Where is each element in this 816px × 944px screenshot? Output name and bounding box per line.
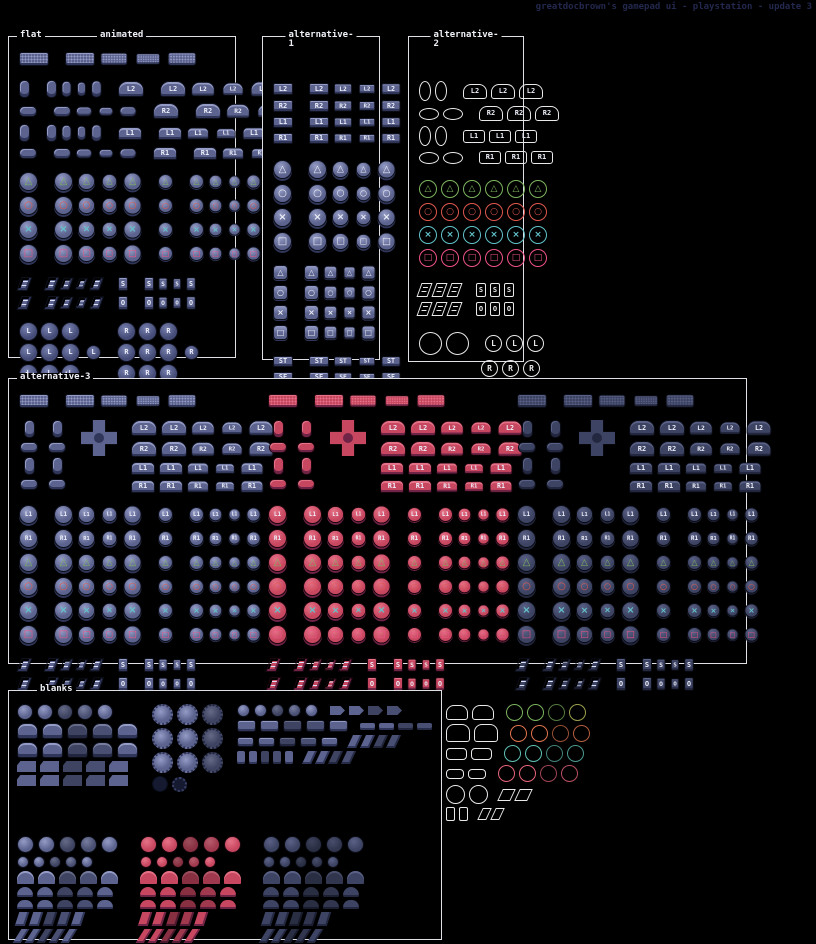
- sprite-group: [419, 126, 447, 146]
- sprite-label: L1: [720, 466, 727, 472]
- face-button-circle-sprite: ○: [78, 578, 95, 595]
- face-button-square-triangle-sprite: △: [304, 265, 319, 280]
- trigger-button-l1-sprite: L1: [380, 462, 404, 475]
- sprite-label: L2: [471, 88, 479, 95]
- outline-ring-teal-sprite: [525, 745, 542, 762]
- trigger-chip-r2-sprite: R2: [382, 100, 401, 111]
- face-button-circle-sprite: ○: [327, 578, 344, 595]
- sprite-group: ×: [656, 603, 671, 618]
- sprite-label: L1: [223, 130, 230, 136]
- sprite-group: [19, 106, 37, 117]
- trigger-chip-st-sprite: ST: [334, 357, 352, 367]
- sprite-group: ××××: [303, 601, 391, 620]
- face-button-l1-sprite: L1: [327, 506, 344, 523]
- sprite-label: O: [507, 306, 511, 313]
- sprite-label: R1: [279, 135, 287, 142]
- sprite-group: [140, 887, 236, 897]
- face-button-cross-sprite: ×: [552, 601, 571, 620]
- blanks-top-panel-1: [17, 701, 138, 786]
- sprite-group: R1: [407, 531, 422, 546]
- sprite-label: R2: [487, 110, 495, 117]
- sprite-label: O: [687, 681, 691, 688]
- sprite-row: ○○○○○○: [419, 203, 513, 221]
- sprite-row: OOO: [419, 302, 513, 316]
- sprite-label: L1: [279, 119, 287, 126]
- sprite-group: [517, 677, 528, 691]
- dpad-pill-horizontal-sprite: [53, 148, 71, 159]
- face-button-circle-sprite: ○: [123, 196, 141, 214]
- face-button-l1-sprite: L1: [656, 507, 671, 522]
- face-button-cross-sprite: ×: [707, 604, 721, 618]
- outline-circle-large-sprite: [419, 332, 442, 355]
- cross-glyph: ×: [365, 309, 371, 317]
- face-button-r1-sprite: R1: [189, 531, 204, 546]
- sprite-label: L2: [527, 88, 535, 95]
- trigger-button-l1-sprite: L1: [739, 462, 762, 474]
- sprite-label: L1: [222, 466, 229, 472]
- circle-glyph: ○: [360, 190, 367, 198]
- dpad-pill-horizontal-sprite: [19, 106, 37, 117]
- sprite-group: [517, 394, 547, 408]
- triangle-glyph: △: [314, 165, 322, 175]
- square-glyph: □: [557, 630, 566, 640]
- section-alternative-1: alternative-1 L2L2L2L2L2R2R2R2R2R2L1L1L1…: [262, 36, 380, 360]
- face-button-square-sprite: □: [158, 627, 173, 642]
- touchpad-sprite: [168, 394, 197, 407]
- sprite-label: L2: [506, 425, 514, 432]
- triangle-glyph: △: [447, 185, 454, 194]
- trigger-button-l1-sprite: L1: [436, 463, 458, 475]
- blank-half-dome-sprite: [160, 900, 176, 909]
- variant-rows: L2L2L2L2L2R2R2R2R2R2L1L1L1L1L1R1R1R1R1R1…: [511, 387, 754, 693]
- sprite-label: R: [124, 328, 128, 335]
- trigger-chip-st-sprite: ST: [309, 356, 329, 367]
- sprite-group: [268, 677, 279, 691]
- sprite-label: R2: [419, 446, 427, 453]
- blank-circle-sprite: [77, 704, 93, 720]
- blank-slant-right-sprite: [138, 912, 153, 926]
- outline-ring-teal-sprite: [567, 745, 584, 762]
- sprite-label: S: [370, 662, 374, 669]
- trigger-button-r1-sprite: R1: [222, 148, 244, 160]
- blank-arch-sprite: [326, 871, 343, 884]
- sprite-label: S: [507, 287, 511, 294]
- trigger-button-r2-sprite: R2: [747, 441, 772, 456]
- sprite-label: L1: [470, 133, 478, 140]
- sprite-group: L1: [517, 505, 536, 524]
- sprite-label: R1: [605, 536, 611, 541]
- sprite-row: [446, 724, 590, 742]
- face-button-square-sprite: □: [246, 246, 260, 260]
- face-button-cross-sprite: ×: [189, 603, 204, 618]
- sprite-label: R2: [478, 446, 485, 452]
- face-button-square-square-sprite: □: [324, 326, 338, 340]
- sprite-group: [237, 737, 338, 747]
- circle-glyph: ○: [106, 202, 113, 210]
- sprite-group: [419, 283, 460, 297]
- cross-glyph: ×: [250, 226, 256, 234]
- blank-half-dome-sprite: [323, 887, 339, 897]
- face-button-triangle-sprite: △: [438, 555, 453, 570]
- share-options-slanted-sprite: [75, 678, 88, 689]
- sprite-label: L2: [230, 86, 237, 92]
- face-button-r1-sprite: R1: [54, 529, 73, 548]
- face-button-square-sprite: □: [158, 246, 173, 261]
- trigger-button-r1-sprite: R1: [159, 480, 183, 493]
- sprite-group: ○○○○: [552, 577, 640, 596]
- face-button-triangle-sprite: △: [495, 555, 509, 569]
- blank-slant-sprite: [341, 751, 356, 764]
- sprite-label: S: [189, 281, 193, 288]
- sprite-group: [500, 789, 530, 801]
- cross-glyph: ×: [277, 309, 284, 317]
- share-options-slanted-sprite: [59, 659, 73, 672]
- sprite-label: R1: [194, 483, 202, 489]
- sprite-group: △: [19, 553, 38, 572]
- blank-circle-large-sprite: [161, 836, 178, 853]
- face-button-circle-sprite: ○: [268, 577, 287, 596]
- sprite-row: [263, 856, 364, 868]
- sprite-label: R2: [199, 446, 207, 452]
- share-options-slanted-sprite: [59, 297, 73, 310]
- triangle-glyph: △: [604, 559, 610, 567]
- trigger-frames-row: R2R2R2R2R2: [629, 441, 772, 457]
- face-button-triangle-sprite: △: [209, 556, 223, 570]
- sprite-group: OOO: [476, 302, 514, 316]
- dpad-pill-horizontal-sprite: [119, 148, 136, 158]
- circle-glyph: ○: [59, 582, 68, 592]
- sprite-group: [46, 277, 102, 291]
- trigger-frames-row: L1L1L1L1L1: [131, 462, 274, 475]
- face-button-triangle-sprite: △: [123, 553, 141, 571]
- face-button-l1-sprite: L1: [621, 505, 639, 523]
- circle-glyph: ○: [604, 583, 611, 591]
- face-button-square-circle-sprite: ○: [344, 287, 356, 299]
- sprite-group: △△△△: [303, 553, 391, 572]
- panel-rows: [17, 833, 118, 944]
- sprite-row: [263, 912, 364, 926]
- sprite-label: R1: [665, 483, 673, 490]
- sprite-row: [17, 900, 118, 909]
- blank-arch-sprite: [101, 871, 118, 884]
- sprite-label: R2: [234, 108, 242, 114]
- sprite-group: L1: [273, 117, 293, 128]
- sprite-group: R2: [131, 441, 157, 457]
- face-button-l1-sprite: L1: [517, 505, 536, 524]
- outline-circle-blank-sprite: [446, 785, 465, 804]
- trigger-button-l2-sprite: L2: [118, 81, 144, 97]
- blank-arch-sprite: [263, 871, 280, 884]
- face-button-square-sprite: □: [327, 626, 344, 643]
- outline-face-button-circle-sprite: ○: [419, 203, 437, 221]
- stick-r-small-sprite: R: [184, 345, 199, 360]
- sprite-label: R: [166, 370, 170, 377]
- sprite-label: R1: [60, 536, 67, 542]
- dpad-pill-vertical-sprite: [52, 457, 63, 475]
- sprite-group: S: [367, 658, 377, 672]
- sprite-label: L1: [692, 465, 700, 471]
- triangle-glyph: △: [730, 559, 735, 565]
- face-button-triangle-sprite: △: [102, 555, 117, 570]
- triangle-glyph: △: [481, 559, 486, 565]
- share-options-slanted-sprite: [308, 678, 322, 691]
- sprite-group: △△△△: [54, 553, 142, 572]
- blank-circle-sprite: [97, 704, 113, 720]
- stick-grid: RRRRRRRRR: [117, 322, 178, 383]
- cross-glyph: ×: [162, 607, 169, 615]
- face-button-cross-sprite: ×: [273, 208, 292, 227]
- blank-small-bar-sprite: [261, 751, 269, 764]
- share-options-slanted-sprite: [89, 296, 104, 309]
- dpad-pill-vertical-sprite: [91, 124, 101, 141]
- share-options-slanted-sprite: [265, 658, 281, 672]
- face-button-square-sprite: □: [438, 627, 453, 642]
- blank-notch-chip-sprite: [63, 775, 82, 786]
- sprite-group: [498, 765, 578, 782]
- blank-circle-small-sprite: [172, 856, 184, 868]
- blank-slant-right-sprite: [15, 912, 30, 926]
- triangle-glyph: △: [347, 269, 352, 275]
- sprite-group: R1R1R1R1: [552, 529, 640, 548]
- dpad-trigger-block: L2L2L2L2L2R2R2R2R2R2L1L1L1L1L1R1R1R1R1R1: [517, 420, 772, 493]
- sprite-group: ○: [407, 579, 422, 594]
- cross-glyph: ×: [212, 226, 218, 233]
- sprite-label: L1: [162, 512, 169, 518]
- sprite-row: [17, 723, 138, 739]
- square-glyph: □: [360, 238, 368, 246]
- blank-chip-sprite: [237, 720, 256, 732]
- share-options-chip-o-sprite: O: [684, 677, 694, 690]
- trigger-button-l2-sprite: L2: [440, 421, 463, 435]
- sprite-label: L1: [83, 512, 90, 517]
- square-glyph: □: [346, 329, 352, 335]
- share-options-chip-s-sprite: S: [657, 659, 666, 672]
- face-button-cross-sprite: ×: [687, 603, 702, 618]
- triangle-glyph: △: [308, 269, 314, 277]
- outline-chip-l1-sprite: L1: [515, 130, 537, 143]
- sprite-group: □: [19, 625, 38, 644]
- blank-circle-sprite: [17, 704, 33, 720]
- share-options-chip-s-sprite: S: [408, 659, 417, 672]
- sprite-label: R2: [162, 108, 170, 115]
- share-options-slanted-sprite: [541, 677, 557, 691]
- dpad-cross-sprite: [330, 420, 366, 456]
- sprite-row: SSSSS: [19, 658, 250, 672]
- face-button-circle-sprite: ○: [229, 581, 241, 593]
- sprite-label: R1: [161, 150, 169, 157]
- sprite-label: S: [438, 662, 442, 669]
- sprite-group: [19, 677, 30, 691]
- sprite-label: L1: [388, 465, 396, 472]
- face-button-triangle-sprite: △: [158, 174, 173, 189]
- square-glyph: □: [250, 250, 257, 258]
- sprite-row: SSSSS: [19, 277, 225, 291]
- sprite-row: △△△△△: [273, 265, 369, 280]
- face-button-circle-sprite: ○: [495, 579, 509, 593]
- cross-glyph: ×: [129, 606, 137, 616]
- face-button-l1-sprite: L1: [687, 507, 702, 522]
- blank-slant-right-sprite: [289, 912, 304, 926]
- sprite-label: L2: [339, 86, 347, 92]
- trigger-button-l2-sprite: L2: [720, 422, 741, 435]
- outline-ring-orange-sprite: [531, 725, 548, 742]
- dpad-pill-vertical-sprite: [273, 457, 284, 475]
- square-glyph: □: [106, 631, 114, 639]
- trigger-button-l2-sprite: L2: [410, 420, 436, 436]
- stick-l-sprite: L: [40, 343, 59, 362]
- outline-letter-chip-s-sprite: S: [490, 283, 500, 297]
- sprite-label: R1: [660, 536, 667, 542]
- outline-ring-pink-sprite: [561, 765, 578, 782]
- triangle-glyph: △: [274, 558, 282, 568]
- circle-glyph: ○: [660, 583, 667, 591]
- blank-circle-small-sprite: [327, 856, 339, 868]
- circle-glyph: ○: [468, 208, 476, 217]
- square-glyph: □: [308, 329, 316, 337]
- sprite-label: S: [121, 662, 125, 669]
- face-button-triangle-sprite: △: [303, 553, 322, 572]
- sprite-group: [419, 368, 465, 369]
- cross-glyph: ×: [232, 607, 237, 613]
- face-button-l1-sprite: L1: [78, 506, 95, 523]
- face-button-l1-sprite: L1: [229, 509, 241, 521]
- face-button-circle-sprite: ○: [158, 198, 173, 213]
- blank-arrow-sprite: [330, 706, 345, 715]
- sprite-group: △: [158, 555, 173, 570]
- square-glyph: □: [626, 630, 635, 640]
- blank-notch-chip-sprite: [109, 775, 128, 786]
- blank-slant-right-sprite: [180, 912, 195, 926]
- outline-face-button-triangle-sprite: △: [463, 180, 481, 198]
- sprite-label: R1: [387, 135, 395, 142]
- sprite-label: L1: [194, 130, 202, 136]
- panel-rows: [263, 833, 364, 944]
- sprite-group: ○○○○: [303, 577, 391, 596]
- sprite-row: ○○○○○○○○○○: [19, 196, 225, 215]
- sprite-group: [19, 277, 30, 291]
- outline-slanted-sprite: [431, 302, 447, 316]
- square-glyph: □: [24, 630, 33, 640]
- gamepad-sprite-sheet: greatdocbrown's gamepad ui - playstation…: [0, 0, 816, 944]
- outline-chip-l1-sprite: L1: [463, 130, 485, 143]
- sprite-row: [17, 775, 138, 786]
- share-options-chip-s-sprite: S: [186, 277, 196, 290]
- sprite-row: [17, 929, 118, 943]
- face-button-cross-sprite: ×: [576, 602, 593, 619]
- face-button-circle-sprite: ○: [209, 580, 223, 594]
- outline-slanted-sprite: [446, 302, 462, 316]
- outline-slanted-sprite: [446, 283, 462, 297]
- sprite-label: ST: [339, 358, 347, 364]
- sprite-group: [17, 836, 118, 853]
- blank-circle-small-sprite: [33, 856, 45, 868]
- share-options-chip-o-sprite: O: [616, 677, 626, 691]
- face-button-circle-sprite: ○: [273, 184, 292, 203]
- blank-small-bar-sprite: [285, 751, 293, 764]
- sprite-row: L1L1L1L1L1: [273, 117, 369, 128]
- sprite-group: L1L1L1L1: [657, 462, 762, 475]
- dpad-pill-horizontal-sprite: [518, 442, 536, 453]
- square-glyph: □: [424, 254, 433, 263]
- face-button-triangle-sprite: △: [209, 175, 223, 189]
- trigger-frames-row: L1L1L1L1L1: [629, 462, 772, 475]
- blank-arrow-sprite: [368, 706, 383, 715]
- face-button-square-sprite: □: [744, 627, 758, 641]
- outline-bar-blank-sprite: [459, 807, 468, 821]
- trigger-chip-r1-sprite: R1: [273, 133, 293, 144]
- trigger-chip-l2-sprite: L2: [309, 83, 329, 95]
- sprite-group: □□□□: [54, 244, 142, 263]
- sprite-label: R1: [83, 536, 90, 541]
- share-options-slanted-sprite: [557, 659, 571, 672]
- circle-glyph: ○: [499, 583, 506, 591]
- face-button-triangle-sprite: △: [356, 162, 371, 177]
- sprite-label: R2: [448, 446, 456, 452]
- outline-face-button-square-sprite: □: [441, 249, 459, 267]
- face-button-triangle-sprite: △: [327, 554, 344, 571]
- circle-glyph: ○: [106, 583, 113, 591]
- face-button-square-sprite: □: [687, 627, 702, 642]
- sprite-label: R1: [139, 483, 147, 490]
- alternative-3-variant-slate: L2L2L2L2L2R2R2R2R2R2L1L1L1L1L1R1R1R1R1R1…: [511, 387, 754, 693]
- blank-trigger-sprite: [92, 742, 113, 758]
- sprite-group: [152, 728, 223, 749]
- blank-circle-large-sprite: [101, 836, 118, 853]
- dpad-pill-vertical-sprite: [273, 420, 284, 438]
- cross-glyph: ×: [490, 231, 498, 240]
- face-button-l1-sprite: L1: [54, 505, 73, 524]
- dpad-pill-vertical-sprite: [62, 125, 72, 141]
- share-options-chip-s-sprite: S: [435, 658, 445, 671]
- sprite-label: R1: [499, 536, 506, 542]
- triangle-glyph: △: [535, 185, 542, 194]
- sprite-group: L2: [118, 81, 144, 97]
- share-options-chip-o-sprite: O: [408, 678, 417, 691]
- face-button-triangle-sprite: △: [158, 555, 173, 570]
- trigger-chip-l1-sprite: L1: [309, 117, 329, 128]
- face-button-r1-sprite: R1: [209, 532, 223, 546]
- sprite-label: S: [619, 662, 623, 669]
- blank-circle-sprite: [237, 704, 250, 717]
- face-button-l1-sprite: L1: [438, 507, 453, 522]
- face-button-square-sprite: □: [229, 248, 241, 260]
- blank-half-dome-sprite: [263, 887, 279, 897]
- face-button-circle-sprite: ○: [246, 198, 260, 212]
- sprite-group: O: [118, 296, 128, 310]
- dpad-pill-vertical-sprite: [301, 457, 312, 475]
- cross-glyph: ×: [481, 607, 486, 613]
- face-button-r1-sprite: R1: [351, 531, 366, 546]
- sprite-group: [152, 752, 223, 773]
- triangle-glyph: △: [129, 177, 136, 187]
- triangle-glyph: △: [251, 178, 257, 186]
- sprite-group: [263, 912, 329, 926]
- face-button-circle-sprite: ○: [576, 578, 593, 595]
- sprite-row: [19, 52, 225, 66]
- sprite-group: L1: [656, 507, 671, 522]
- outline-letter-chip-o-sprite: O: [504, 302, 514, 316]
- sprite-label: L1: [129, 512, 136, 518]
- sprite-group: R1R1R1R1: [657, 480, 762, 493]
- touchpad-sprite: [101, 53, 128, 66]
- sprite-label: L1: [665, 465, 673, 472]
- outline-ring-teal-sprite: [504, 745, 521, 762]
- square-glyph: □: [748, 631, 755, 639]
- face-button-l1-sprite: L1: [189, 507, 204, 522]
- sprite-group: [419, 152, 463, 164]
- sprite-row: [140, 900, 241, 909]
- blank-half-dome-sprite: [220, 887, 236, 897]
